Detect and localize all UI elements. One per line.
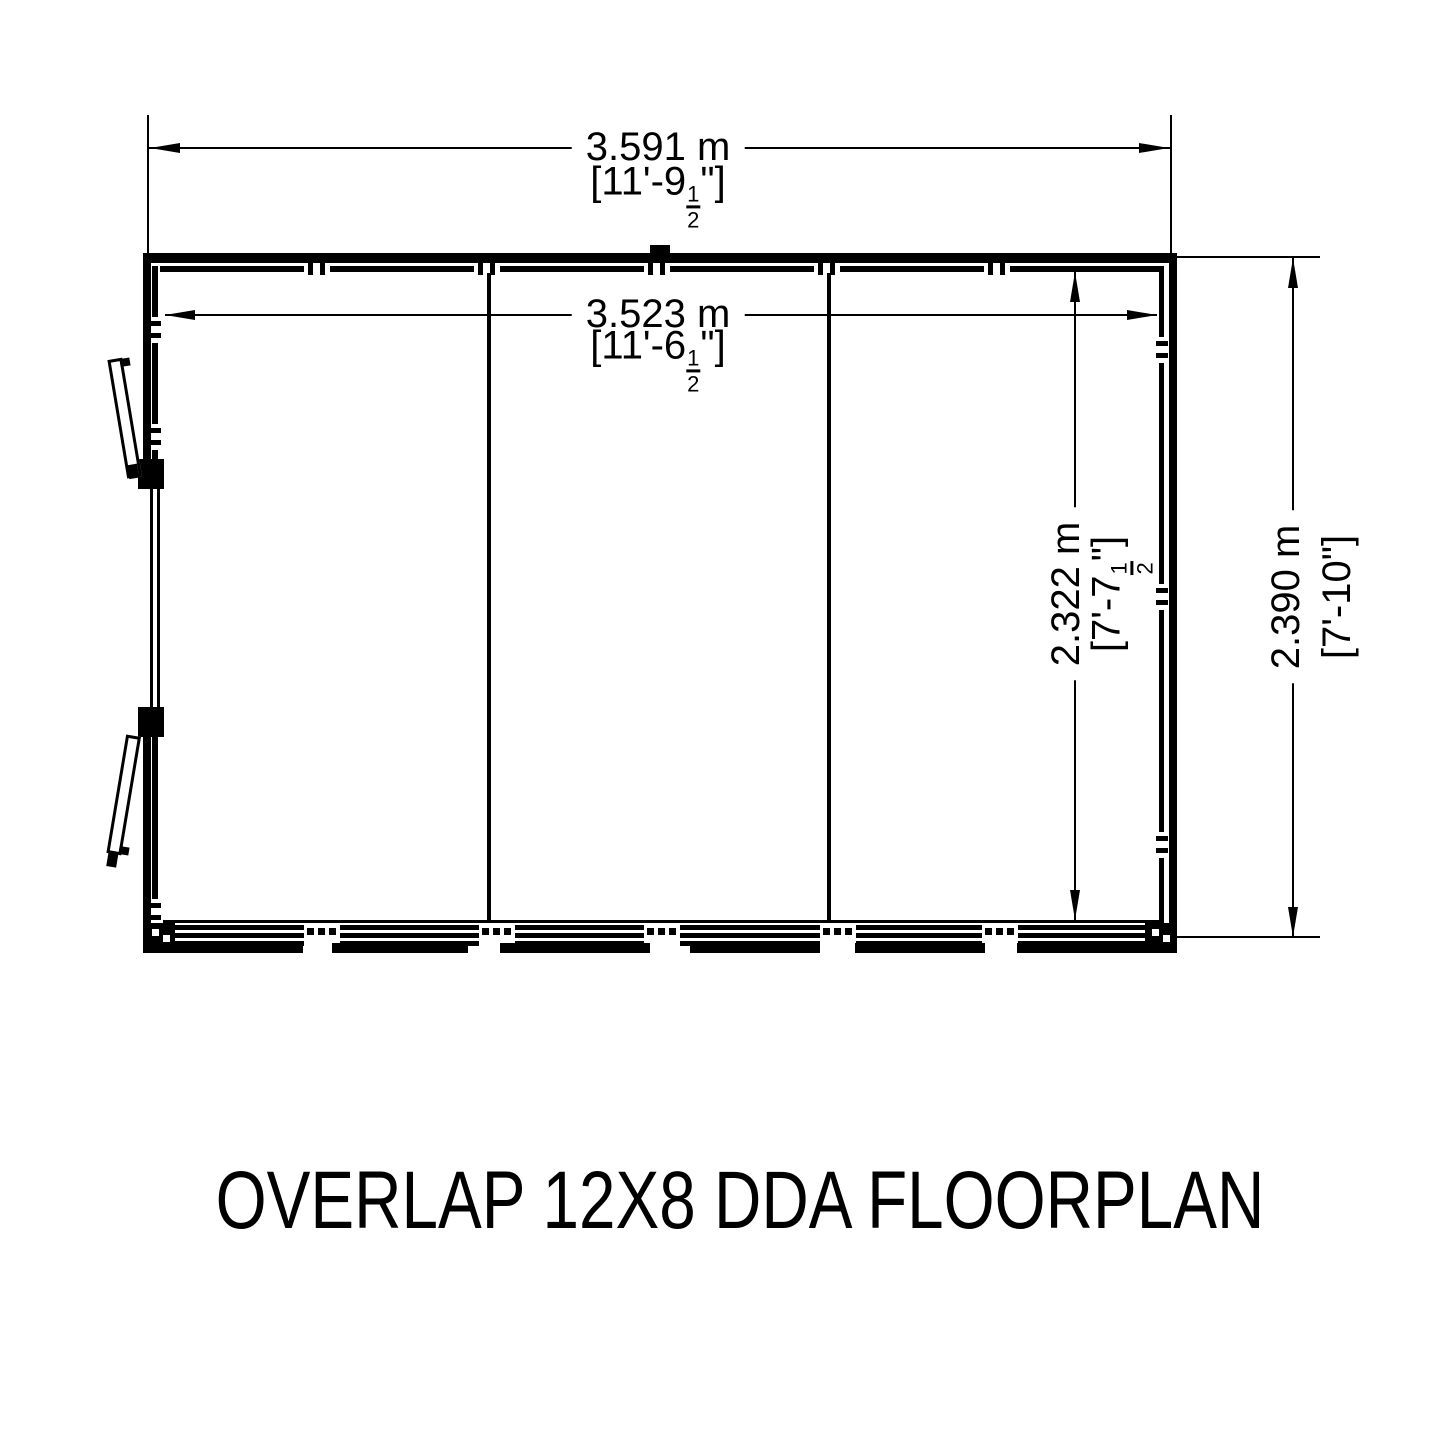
left-wall-outer-lower: [143, 737, 151, 943]
joint-tick: [1156, 353, 1168, 358]
joint-tick: [1156, 600, 1168, 605]
joint-tick: [988, 263, 993, 275]
outer-depth-metric-label: 2.390 m: [1265, 511, 1307, 684]
joint-tick: [149, 333, 161, 338]
plank-dot: [658, 928, 665, 935]
floor-slab: [1017, 943, 1150, 953]
fraction: 12: [686, 182, 700, 231]
floorplan-canvas: 3.591 m [11'-912"] 3.523 m [11'-612"] 2.…: [0, 0, 1445, 1445]
plank-dot: [996, 928, 1003, 935]
joint-tick: [149, 903, 161, 908]
arrowhead-up: [1070, 272, 1080, 302]
door-opening-frame-outer: [150, 489, 153, 707]
right-wall-outer: [1169, 253, 1177, 940]
door-hinge-block-lower: [138, 707, 164, 737]
joint-tick: [320, 263, 325, 275]
arrowhead-right: [1127, 310, 1157, 320]
joint-tick: [1156, 848, 1168, 853]
imperial-text: [7'-10: [1315, 560, 1359, 659]
arrowhead-left: [150, 143, 180, 153]
corner-notch: [163, 935, 170, 942]
joint-tick: [1156, 341, 1168, 346]
flap-end-tab: [118, 846, 129, 856]
plank-dot: [845, 928, 852, 935]
joint-tick: [1000, 263, 1005, 275]
floor-slab: [332, 943, 468, 953]
imperial-text: [11'-6: [590, 323, 686, 367]
flap-foot: [106, 852, 118, 867]
floor-slab: [170, 943, 303, 953]
arrowhead-down: [1070, 890, 1080, 920]
imperial-text: [7'-7: [1084, 576, 1128, 653]
fraction: 12: [686, 346, 700, 395]
plank-dot: [1007, 928, 1014, 935]
plank-dot: [318, 928, 325, 935]
flap-end-tab: [119, 357, 130, 367]
joint-tick: [648, 263, 653, 275]
partition-line-1: [487, 272, 491, 922]
arrowhead-left: [165, 310, 195, 320]
joint-tick: [490, 263, 495, 275]
plank-dot: [669, 928, 676, 935]
outer-depth-imperial-label: [7'-10"]: [1316, 535, 1358, 659]
partition-line-2: [827, 272, 831, 922]
extension-line: [1177, 936, 1320, 938]
joint-tick: [149, 440, 161, 445]
joint-tick: [1156, 836, 1168, 841]
plank-dot: [823, 928, 830, 935]
left-wall-inner-lower: [152, 737, 158, 923]
joint-tick: [149, 321, 161, 326]
bottom-wall-inner-face: [163, 920, 1159, 923]
floor-slab: [500, 943, 650, 953]
hinged-flap-lower: [106, 735, 141, 856]
plank-dot: [329, 928, 336, 935]
bottom-right-corner-block: [1145, 923, 1177, 953]
joint-tick: [818, 263, 823, 275]
corner-notch: [1163, 935, 1170, 942]
joint-tick: [149, 915, 161, 920]
plank-dot: [834, 928, 841, 935]
joint-tick: [478, 263, 483, 275]
imperial-text: [11'-9: [590, 159, 686, 203]
arrowhead-right: [1139, 143, 1169, 153]
joint-tick: [308, 263, 313, 275]
corner-notch: [152, 929, 159, 936]
arrowhead-up: [1288, 258, 1298, 288]
joint-tick: [830, 263, 835, 275]
bottom-left-corner-block: [143, 923, 175, 953]
plank-dot: [647, 928, 654, 935]
plank-dot: [504, 928, 511, 935]
inner-depth-metric-label: 2.322 m: [1045, 508, 1087, 681]
inner-width-imperial-label: [11'-612"]: [590, 324, 725, 395]
extension-line: [1177, 256, 1320, 258]
joint-tick: [149, 428, 161, 433]
drawing-title: OVERLAP 12X8 DDA FLOORPLAN: [216, 1160, 1265, 1242]
plank-dot: [985, 928, 992, 935]
door-opening-frame-inner: [157, 489, 160, 707]
flap-foot: [127, 464, 139, 479]
floor-slab: [855, 943, 985, 953]
plank-dot: [493, 928, 500, 935]
top-wall-center-joint-block: [650, 245, 670, 257]
inner-depth-imperial-label: [7'-712"]: [1085, 536, 1156, 652]
joint-tick: [1156, 588, 1168, 593]
outer-width-imperial-label: [11'-912"]: [590, 160, 725, 231]
imperial-text: "]: [1084, 536, 1128, 561]
fraction: 12: [1107, 561, 1156, 575]
joint-tick: [660, 263, 665, 275]
imperial-text: "]: [1315, 535, 1359, 560]
plank-dot: [307, 928, 314, 935]
plank-dot: [482, 928, 489, 935]
arrowhead-down: [1288, 907, 1298, 937]
extension-line: [1170, 115, 1172, 253]
door-hinge-block-upper: [138, 459, 164, 489]
floor-slab: [690, 943, 820, 953]
hinged-flap-upper: [107, 358, 142, 479]
extension-line: [147, 115, 149, 253]
imperial-text: "]: [700, 323, 725, 367]
imperial-text: "]: [700, 159, 725, 203]
corner-notch: [1152, 929, 1159, 936]
